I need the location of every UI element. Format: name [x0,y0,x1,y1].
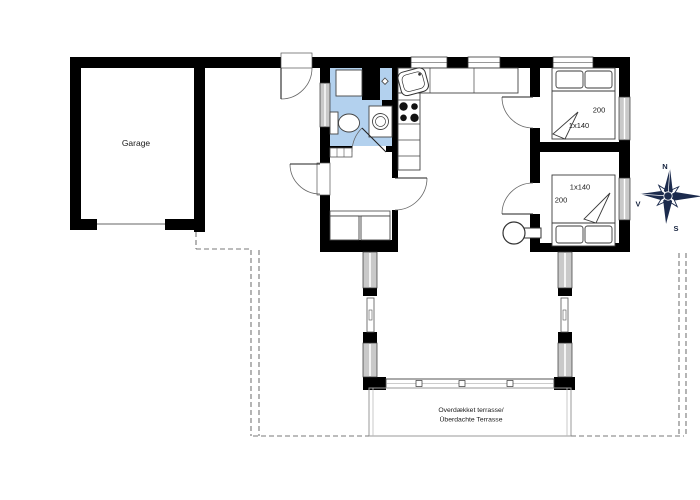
yard-door [281,53,312,99]
vanity [330,148,352,157]
compass-rose: N V S [635,162,700,233]
bedroom1-north-window [553,57,593,68]
shower [336,70,362,96]
hall-door [395,178,427,210]
livingroom-east-window [558,252,572,288]
bedroom2-door [502,183,533,214]
washing-machine [369,106,392,137]
bedroom1-door [502,97,533,128]
compass-south-label: S [673,224,678,233]
bed2-length-label: 200 [555,196,568,205]
bedroom2-east-window [619,178,630,220]
floor-plan-page: N V S Garage 200 1x140 1x140 200 Overdæk… [0,0,700,500]
toilet [330,112,360,134]
bed1-length-label: 200 [593,106,606,115]
front-door [290,163,330,195]
kitchen-window [411,57,447,68]
narrow-window [367,298,374,332]
livingroom-west-window [363,252,377,288]
property-boundary-dashed [196,232,686,436]
bathroom-window [320,83,330,127]
narrow-window [561,298,568,332]
livingroom-east-window [558,343,572,377]
bed2-width-label: 1x140 [570,183,590,192]
terrace-label-line2: Überdachte Terrasse [440,416,503,424]
kitchen-window [468,57,500,68]
floor-plan: N V S Garage 200 1x140 1x140 200 Overdæk… [0,0,700,500]
kitchen [397,66,518,170]
bed1-width-label: 1x140 [569,121,589,130]
garage-label: Garage [122,138,151,148]
terrace-label-line1: Overdækket terrasse/ [438,407,503,414]
hall-wardrobe [330,211,390,240]
compass-west-label: V [635,200,640,209]
livingroom-west-window [363,343,377,377]
compass-north-label: N [662,162,667,171]
glass-facade [386,379,554,388]
bedroom1-east-window [619,97,630,140]
